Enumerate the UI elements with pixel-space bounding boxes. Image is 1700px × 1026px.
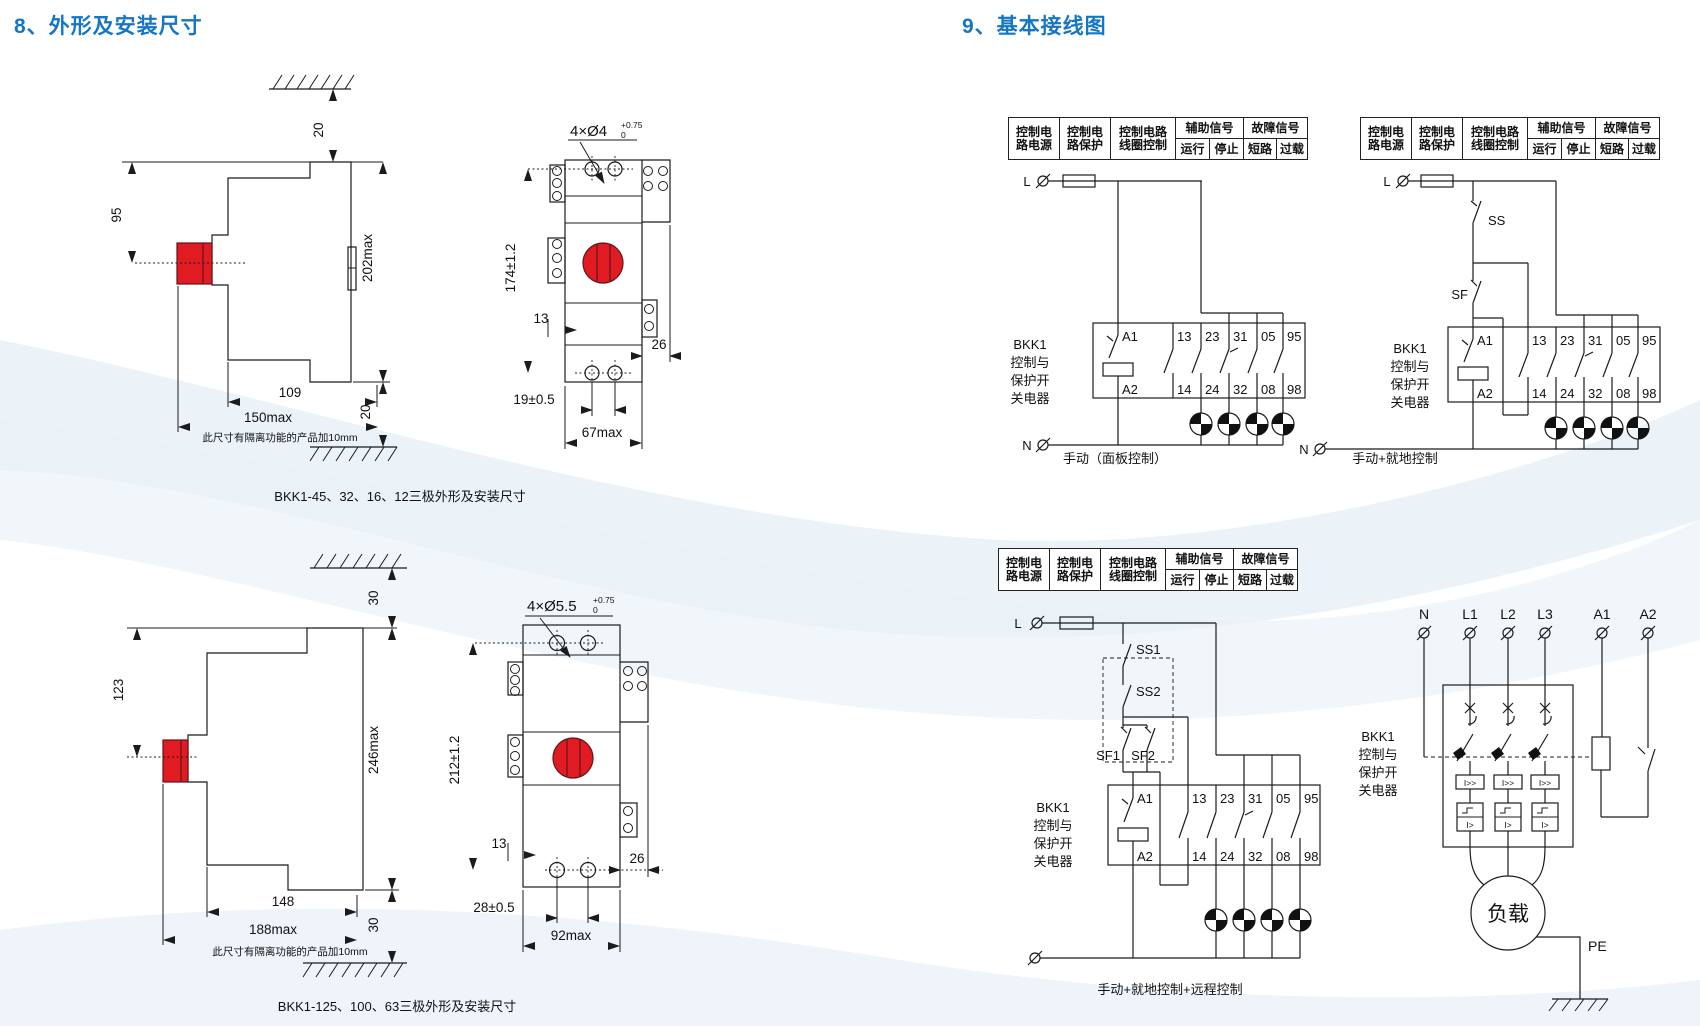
dim-rail-offset: 13 — [488, 836, 535, 861]
dim-tab-width: 26 — [603, 725, 665, 877]
terminal-label: 05 — [1276, 791, 1290, 806]
stop2-label: SS2 — [1136, 684, 1161, 699]
svg-text:关电器: 关电器 — [1033, 854, 1072, 869]
magnetic-trip-label: I>> — [1539, 778, 1551, 788]
relay-box: A1 13 23 31 05 95 A2 14 24 32 08 98 — [1093, 323, 1305, 445]
terminal-label: 08 — [1276, 849, 1290, 864]
svg-text:关电器: 关电器 — [1358, 783, 1397, 798]
table-cell: 控制电路线圈控制 — [1101, 549, 1165, 590]
wiring-diagram-2: L SS SF A1 13 23 31 05 95 A2 14 24 32 08… — [1290, 165, 1670, 465]
indicator-button — [553, 738, 593, 778]
tolerance-lower: 0 — [593, 605, 598, 615]
dim-hole-pitch: 28±0.5 — [473, 877, 612, 923]
dim-label-total-height: 246max — [366, 726, 381, 774]
dim-label-hole-pitch: 28±0.5 — [473, 900, 514, 915]
breaker-pole: I>> I> — [1453, 638, 1484, 847]
signal-table-1: 控制电路电源 控制电路保护 控制电路线圈控制 辅助信号 运行 停止 故障信号 短… — [1008, 117, 1308, 160]
dim-label-top-gap: 20 — [311, 122, 326, 137]
phase-l-label: L — [1383, 174, 1390, 189]
dim-body-width: 109 — [228, 362, 377, 407]
dim-height: 174±1.2 — [503, 170, 528, 372]
dim-top-gap: 30 — [366, 569, 392, 627]
dim-label-rail-offset: 13 — [491, 836, 506, 851]
wiring-diagram-1: L A1 13 23 31 05 95 A2 14 24 32 08 98 BK… — [975, 165, 1315, 465]
dim-label-width: 92max — [551, 928, 592, 943]
dim-label-bottom-gap: 30 — [366, 917, 381, 932]
svg-text:BKK1: BKK1 — [1036, 800, 1069, 815]
drawing-side-large: 30 123 246max 30 148 188max 此尺寸有隔离功能的产品加… — [75, 545, 420, 985]
table-cell: 控制电路电源 — [999, 549, 1049, 590]
svg-text:控制与: 控制与 — [1390, 359, 1429, 374]
tolerance-lower: 0 — [621, 130, 626, 140]
terminal-label: 05 — [1616, 333, 1630, 348]
table-cell: 短路 — [1234, 570, 1266, 590]
table-cell: 运行 — [1176, 139, 1209, 159]
table-cell: 故障信号 — [1596, 118, 1659, 138]
table-cell: 控制电路保护 — [1060, 118, 1110, 159]
dim-label-button-height: 123 — [111, 679, 126, 702]
table-cell: 控制电路保护 — [1050, 549, 1100, 590]
load-circuit: 负载 PE — [1470, 847, 1608, 1011]
wall-bottom-hatch — [310, 447, 397, 461]
terminal-label: A2 — [1477, 386, 1493, 401]
dim-label-button-height: 95 — [109, 207, 124, 222]
dim-label-total-width: 150max — [244, 410, 292, 425]
diagram3-caption: 手动+就地控制+远程控制 — [1097, 982, 1242, 997]
drawing-front-large: 4×Ø5.5 +0.75 0 212±1.2 — [445, 585, 690, 965]
svg-text:关电器: 关电器 — [1390, 395, 1429, 410]
terminal-label: 31 — [1588, 333, 1602, 348]
dim-label-tab-width: 26 — [651, 337, 666, 352]
terminal-label: 24 — [1560, 386, 1574, 401]
hole-callout: 4×Ø5.5 +0.75 0 — [525, 595, 615, 657]
dim-label-rail-offset: 13 — [533, 311, 548, 326]
dim-label-total-width: 188max — [249, 922, 297, 937]
terminal-label: A1 — [1122, 329, 1138, 344]
indicator-button — [583, 243, 623, 283]
terminal-label: 08 — [1616, 386, 1630, 401]
terminal-label: 31 — [1248, 791, 1262, 806]
svg-text:BKK1: BKK1 — [1013, 337, 1046, 352]
section-8-title: 8、外形及安装尺寸 — [14, 10, 203, 40]
table-cell: 停止 — [1210, 139, 1243, 159]
svg-text:控制与: 控制与 — [1010, 355, 1049, 370]
dim-rail-offset: 13 — [533, 311, 576, 337]
terminal-label: 98 — [1304, 849, 1318, 864]
stop1-label: SS1 — [1136, 642, 1161, 657]
device-name-label: BKK1 控制与 保护开 关电器 — [1010, 337, 1049, 406]
dim-label-hole-pitch: 19±0.5 — [513, 392, 554, 407]
table-cell: 控制电路电源 — [1361, 118, 1411, 159]
dim-label-total-height: 202max — [360, 234, 375, 282]
dim-bottom-gap: 30 — [366, 891, 392, 962]
terminal-row: N L1 L2 L3 A1 A2 — [1417, 606, 1657, 640]
wiring-diagram-3: L SS1 SS2 SF1 SF2 A1 13 23 31 05 95 A2 1… — [990, 600, 1330, 1012]
table-cell: 故障信号 — [1244, 118, 1307, 138]
drawing-front-small: 4×Ø4 +0.75 0 174±1.2 — [435, 90, 710, 465]
svg-text:控制与: 控制与 — [1033, 818, 1072, 833]
stop-button — [135, 243, 247, 284]
table-cell: 过载 — [1267, 570, 1297, 590]
svg-text:保护开: 保护开 — [1358, 765, 1397, 780]
terminal-l2: L2 — [1500, 606, 1516, 622]
stop-switch-label: SS — [1488, 213, 1506, 228]
terminal-label: A1 — [1137, 791, 1153, 806]
device-name-label: BKK1 控制与 保护开 关电器 — [1033, 800, 1072, 869]
hole-callout: 4×Ø4 +0.75 0 — [568, 120, 643, 183]
dim-label-body-width: 148 — [272, 894, 295, 909]
neutral-line — [1028, 951, 1300, 965]
terminal-label: A2 — [1137, 849, 1153, 864]
device-name-label: BKK1 控制与 保护开 关电器 — [1358, 729, 1397, 798]
phase-n-label: N — [1299, 442, 1308, 457]
dim-hole-pitch: 19±0.5 — [513, 382, 639, 416]
terminal-label: 13 — [1177, 329, 1191, 344]
terminal-label: 14 — [1192, 849, 1206, 864]
table-cell: 过载 — [1277, 139, 1307, 159]
breaker-pole: I>> I> — [1528, 638, 1559, 847]
table-cell: 过载 — [1629, 139, 1659, 159]
terminal-label: 24 — [1220, 849, 1234, 864]
magnetic-trip-label: I>> — [1502, 778, 1514, 788]
dim-label-top-gap: 30 — [366, 590, 381, 605]
terminal-label: A1 — [1477, 333, 1493, 348]
dim-label-bottom-gap: 20 — [358, 404, 373, 419]
terminal-label: 95 — [1304, 791, 1318, 806]
indicator-lamps — [1545, 402, 1649, 449]
dim-label-tab-width: 26 — [629, 851, 644, 866]
dim-width: 92max — [523, 890, 620, 952]
terminal-a1: A1 — [1593, 606, 1610, 622]
dim-top-gap: 20 — [311, 90, 333, 161]
svg-text:BKK1: BKK1 — [1361, 729, 1394, 744]
terminal-label: 13 — [1192, 791, 1206, 806]
svg-text:控制与: 控制与 — [1358, 747, 1397, 762]
terminal-label: 32 — [1248, 849, 1262, 864]
phase-l-label: L — [1023, 174, 1030, 189]
device-outline — [122, 162, 383, 382]
breaker-box: I>> I> I>> I> I>> I> — [1424, 638, 1592, 847]
device-name-label: BKK1 控制与 保护开 关电器 — [1390, 341, 1429, 410]
indicator-lamps — [1190, 398, 1294, 445]
signal-table-2: 控制电路电源 控制电路保护 控制电路线圈控制 辅助信号 运行 停止 故障信号 短… — [1360, 117, 1660, 160]
svg-text:关电器: 关电器 — [1010, 391, 1049, 406]
dim-label-width: 67max — [582, 425, 623, 440]
coil-circuit — [1592, 638, 1655, 817]
table-cell: 控制电路线圈控制 — [1111, 118, 1175, 159]
table-cell: 短路 — [1596, 139, 1628, 159]
tolerance-upper: +0.75 — [621, 120, 643, 130]
dim-label-height: 174±1.2 — [503, 244, 518, 293]
terminal-label: 32 — [1233, 382, 1247, 397]
manual-page: 8、外形及安装尺寸 9、基本接线图 20 95 202max 20 — [0, 0, 1700, 1026]
svg-text:保护开: 保护开 — [1010, 373, 1049, 388]
dim-label-body-width: 109 — [279, 385, 302, 400]
table-cell: 控制电路电源 — [1009, 118, 1059, 159]
table-cell: 辅助信号 — [1176, 118, 1243, 138]
caption-small-frame: BKK1-45、32、16、12三极外形及安装尺寸 — [230, 486, 570, 505]
thermal-trip-label: I> — [1504, 820, 1511, 830]
section-9-title: 9、基本接线图 — [962, 10, 1107, 40]
isolation-note: 此尺寸有隔离功能的产品加10mm — [212, 945, 367, 958]
dim-button-height: 123 — [111, 629, 137, 756]
phase-l-label: L — [1014, 616, 1021, 631]
wall-top-hatch — [269, 75, 354, 89]
table-cell: 控制电路线圈控制 — [1463, 118, 1527, 159]
wall-top-hatch — [310, 554, 407, 568]
dim-width: 67max — [565, 340, 642, 449]
svg-text:BKK1: BKK1 — [1393, 341, 1426, 356]
diagram1-caption: 手动（面板控制） — [1063, 451, 1167, 466]
dim-total-width: 150max — [178, 286, 377, 432]
terminal-l1: L1 — [1462, 606, 1478, 622]
supply-line: L — [1023, 174, 1283, 323]
neutral-line: N — [1299, 442, 1638, 457]
signal-table-3: 控制电路电源 控制电路保护 控制电路线圈控制 辅助信号 运行 停止 故障信号 短… — [998, 548, 1298, 591]
remote-dashed-box — [1103, 658, 1173, 762]
breaker-pole: I>> I> — [1491, 638, 1522, 847]
table-cell: 短路 — [1244, 139, 1276, 159]
table-cell: 停止 — [1562, 139, 1595, 159]
supply-line: L — [1383, 174, 1638, 327]
dim-tab-width: 26 — [621, 225, 685, 362]
dim-bottom-gap: 20 — [358, 383, 383, 446]
table-cell: 控制电路保护 — [1412, 118, 1462, 159]
terminal-label: 24 — [1205, 382, 1219, 397]
dim-height: 212±1.2 — [447, 644, 473, 869]
indicator-lamps — [1205, 865, 1311, 958]
wiring-diagram-4: N L1 L2 L3 A1 A2 I>> I> — [1340, 595, 1700, 1026]
wall-bottom-hatch — [303, 963, 407, 977]
terminal-label: 14 — [1177, 382, 1191, 397]
load-label: 负载 — [1487, 903, 1529, 926]
phase-n-label: N — [1022, 438, 1031, 453]
magnetic-trip-label: I>> — [1464, 778, 1476, 788]
terminal-a2: A2 — [1639, 606, 1656, 622]
terminal-l3: L3 — [1537, 606, 1553, 622]
drawing-side-small: 20 95 202max 20 109 150max 此尺寸有隔离功能的产 — [85, 50, 400, 470]
svg-text:保护开: 保护开 — [1390, 377, 1429, 392]
terminal-label: 95 — [1642, 333, 1656, 348]
terminal-label: 23 — [1205, 329, 1219, 344]
terminal-label: 32 — [1588, 386, 1602, 401]
hole-callout-label: 4×Ø4 — [570, 123, 607, 140]
terminal-label: 05 — [1261, 329, 1275, 344]
relay-box: A1 13 23 31 05 95 A2 14 24 32 08 98 — [1108, 785, 1320, 958]
terminal-label: 31 — [1233, 329, 1247, 344]
table-cell: 辅助信号 — [1528, 118, 1595, 138]
tolerance-upper: +0.75 — [593, 595, 615, 605]
thermal-trip-label: I> — [1466, 820, 1473, 830]
stop-start-switches: SS1 SS2 SF1 SF2 — [1096, 623, 1188, 885]
diagram2-caption: 手动+就地控制 — [1352, 451, 1438, 466]
table-cell: 故障信号 — [1234, 549, 1297, 569]
terminal-label: 13 — [1532, 333, 1546, 348]
earth-label: PE — [1588, 938, 1607, 954]
terminal-label: 08 — [1261, 382, 1275, 397]
terminal-label: A2 — [1122, 382, 1138, 397]
table-cell: 运行 — [1528, 139, 1561, 159]
dim-label-height: 212±1.2 — [447, 736, 462, 785]
table-cell: 辅助信号 — [1166, 549, 1233, 569]
start1-label: SF1 — [1096, 748, 1120, 763]
terminal-label: 98 — [1642, 386, 1656, 401]
table-cell: 运行 — [1166, 570, 1199, 590]
terminal-label: 23 — [1220, 791, 1234, 806]
terminal-label: 23 — [1560, 333, 1574, 348]
svg-text:保护开: 保护开 — [1033, 836, 1072, 851]
start-switch-label: SF — [1451, 287, 1468, 302]
terminal-n: N — [1419, 606, 1429, 622]
relay-box: A1 13 23 31 05 95 A2 14 24 32 08 98 — [1448, 327, 1660, 449]
dim-body-width: 148 — [207, 867, 357, 917]
table-cell: 停止 — [1200, 570, 1233, 590]
caption-large-frame: BKK1-125、100、63三极外形及安装尺寸 — [227, 996, 567, 1015]
hole-callout-label: 4×Ø5.5 — [527, 598, 577, 615]
terminal-label: 14 — [1532, 386, 1546, 401]
isolation-note: 此尺寸有隔离功能的产品加10mm — [202, 431, 357, 444]
stop-button — [127, 740, 197, 782]
dim-button-height: 95 — [109, 163, 132, 262]
dim-total-height: 246max — [365, 629, 399, 890]
thermal-trip-label: I> — [1541, 820, 1548, 830]
start2-label: SF2 — [1131, 748, 1155, 763]
dim-total-height: 202max — [353, 163, 390, 382]
